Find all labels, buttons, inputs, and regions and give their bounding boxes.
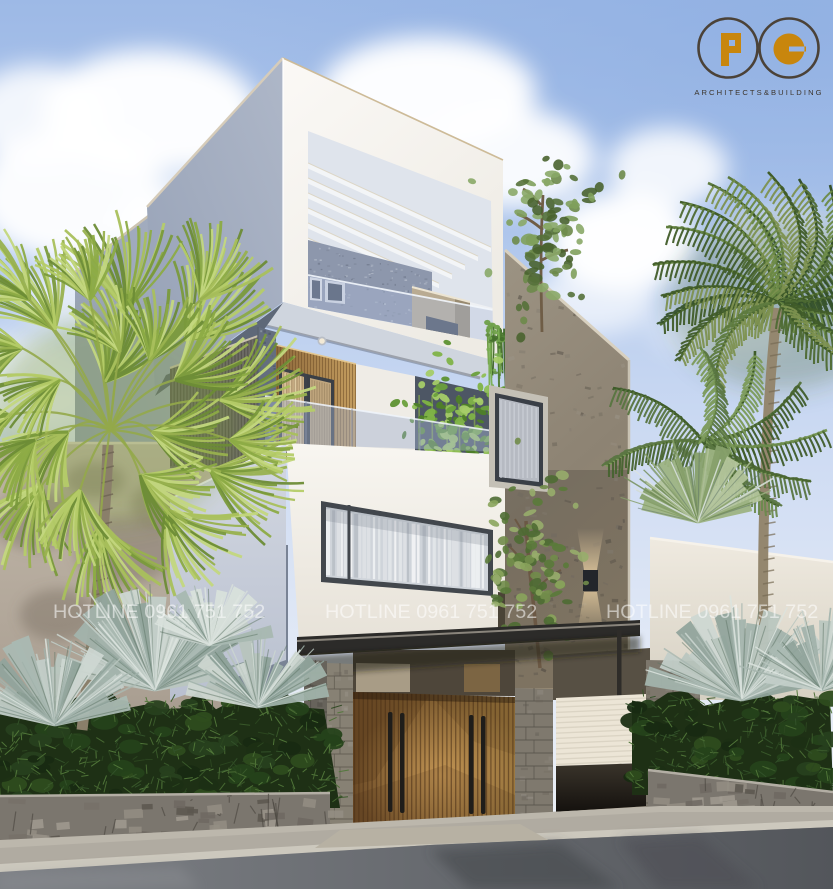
- svg-text:HOTLINE 0961 751 752: HOTLINE 0961 751 752: [53, 601, 265, 623]
- svg-text:ARCHITECTS&BUILDING: ARCHITECTS&BUILDING: [694, 88, 823, 97]
- svg-text:HOTLINE 0961 751 752: HOTLINE 0961 751 752: [325, 601, 537, 623]
- svg-text:HOTLINE 0961 751 752: HOTLINE 0961 751 752: [606, 601, 818, 623]
